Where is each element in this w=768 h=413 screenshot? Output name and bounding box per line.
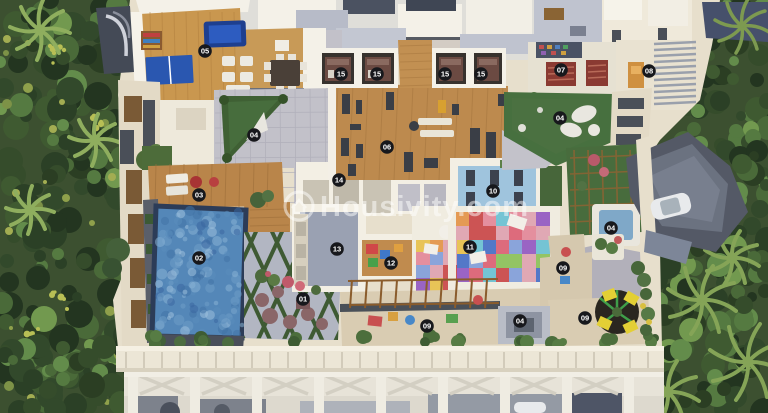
svg-text:15: 15 [477, 70, 485, 79]
svg-text:14: 14 [335, 176, 344, 185]
svg-text:11: 11 [466, 243, 474, 252]
svg-text:08: 08 [645, 67, 653, 76]
svg-text:12: 12 [387, 259, 395, 268]
svg-text:15: 15 [441, 70, 449, 79]
svg-text:02: 02 [195, 254, 203, 263]
svg-text:03: 03 [195, 191, 203, 200]
svg-text:07: 07 [557, 66, 565, 75]
svg-text:04: 04 [250, 131, 259, 140]
svg-text:15: 15 [337, 70, 345, 79]
svg-text:06: 06 [383, 143, 391, 152]
svg-text:15: 15 [373, 70, 381, 79]
svg-text:09: 09 [581, 314, 589, 323]
svg-text:09: 09 [559, 264, 567, 273]
svg-text:05: 05 [201, 47, 209, 56]
svg-text:10: 10 [489, 187, 497, 196]
svg-text:13: 13 [333, 245, 341, 254]
svg-text:04: 04 [516, 317, 525, 326]
svg-text:09: 09 [423, 322, 431, 331]
svg-text:04: 04 [607, 224, 616, 233]
svg-text:04: 04 [556, 114, 565, 123]
svg-text:01: 01 [299, 295, 307, 304]
